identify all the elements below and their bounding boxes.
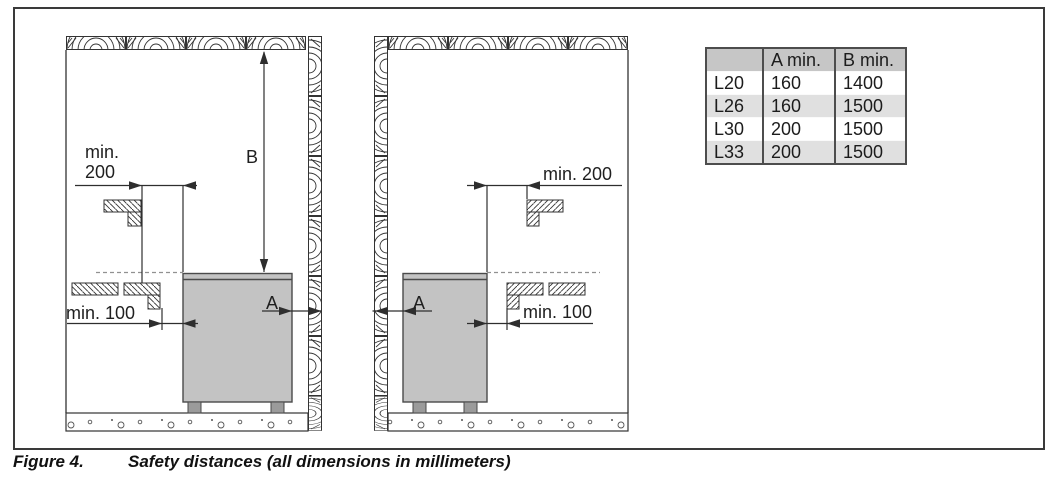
right-left-wall <box>361 37 388 431</box>
model-cell: L33 <box>706 141 763 165</box>
left-sauna-diagram: min. 200 B min. 100 A <box>66 21 335 431</box>
model-cell: L26 <box>706 95 763 118</box>
table-row: L33 200 1500 <box>706 141 906 165</box>
a-dimension-label-left: A <box>266 293 278 313</box>
figure-caption: Figure 4. Safety distances (all dimensio… <box>13 452 1053 474</box>
model-cell: L20 <box>706 72 763 95</box>
table-row: L20 160 1400 <box>706 72 906 95</box>
min-200-label-left-word: min. <box>85 142 119 162</box>
a-min-cell: 160 <box>763 72 835 95</box>
left-dim-min200 <box>75 181 197 283</box>
b-min-cell: 1500 <box>835 118 906 141</box>
a-min-cell: 160 <box>763 95 835 118</box>
min-200-label-right: min. 200 <box>543 164 612 184</box>
table-row: L30 200 1500 <box>706 118 906 141</box>
min-100-label-right: min. 100 <box>523 302 592 322</box>
left-dim-b <box>260 51 268 272</box>
header-b-min-cell: B min. <box>835 48 906 72</box>
left-ceiling <box>67 21 306 50</box>
b-min-cell: 1500 <box>835 141 906 165</box>
a-min-cell: 200 <box>763 141 835 165</box>
left-benches <box>72 200 160 309</box>
figure-page: min. 200 B min. 100 A <box>0 0 1061 477</box>
safety-distance-table: A min. B min. L20 160 1400 L26 160 1500 … <box>705 47 907 165</box>
left-floor <box>66 413 308 431</box>
b-min-cell: 1500 <box>835 95 906 118</box>
table-row: L26 160 1500 <box>706 95 906 118</box>
figure-caption-label: Figure 4. <box>13 452 84 472</box>
table-header-row: A min. B min. <box>706 48 906 72</box>
header-a-min-cell: A min. <box>763 48 835 72</box>
min-100-label-left: min. 100 <box>66 303 135 323</box>
right-ceiling <box>389 21 628 50</box>
a-min-cell: 200 <box>763 118 835 141</box>
right-sauna-diagram: min. 200 min. 100 A <box>361 21 628 431</box>
left-right-wall <box>309 37 336 431</box>
right-floor <box>388 413 628 431</box>
b-dimension-label: B <box>246 147 258 167</box>
b-min-cell: 1400 <box>835 72 906 95</box>
min-200-label-left-value: 200 <box>85 162 115 182</box>
right-benches <box>507 200 585 309</box>
a-dimension-label-right: A <box>413 293 425 313</box>
header-model-cell <box>706 48 763 72</box>
right-dim-min200 <box>467 181 622 272</box>
model-cell: L30 <box>706 118 763 141</box>
figure-caption-text: Safety distances (all dimensions in mill… <box>128 452 511 472</box>
